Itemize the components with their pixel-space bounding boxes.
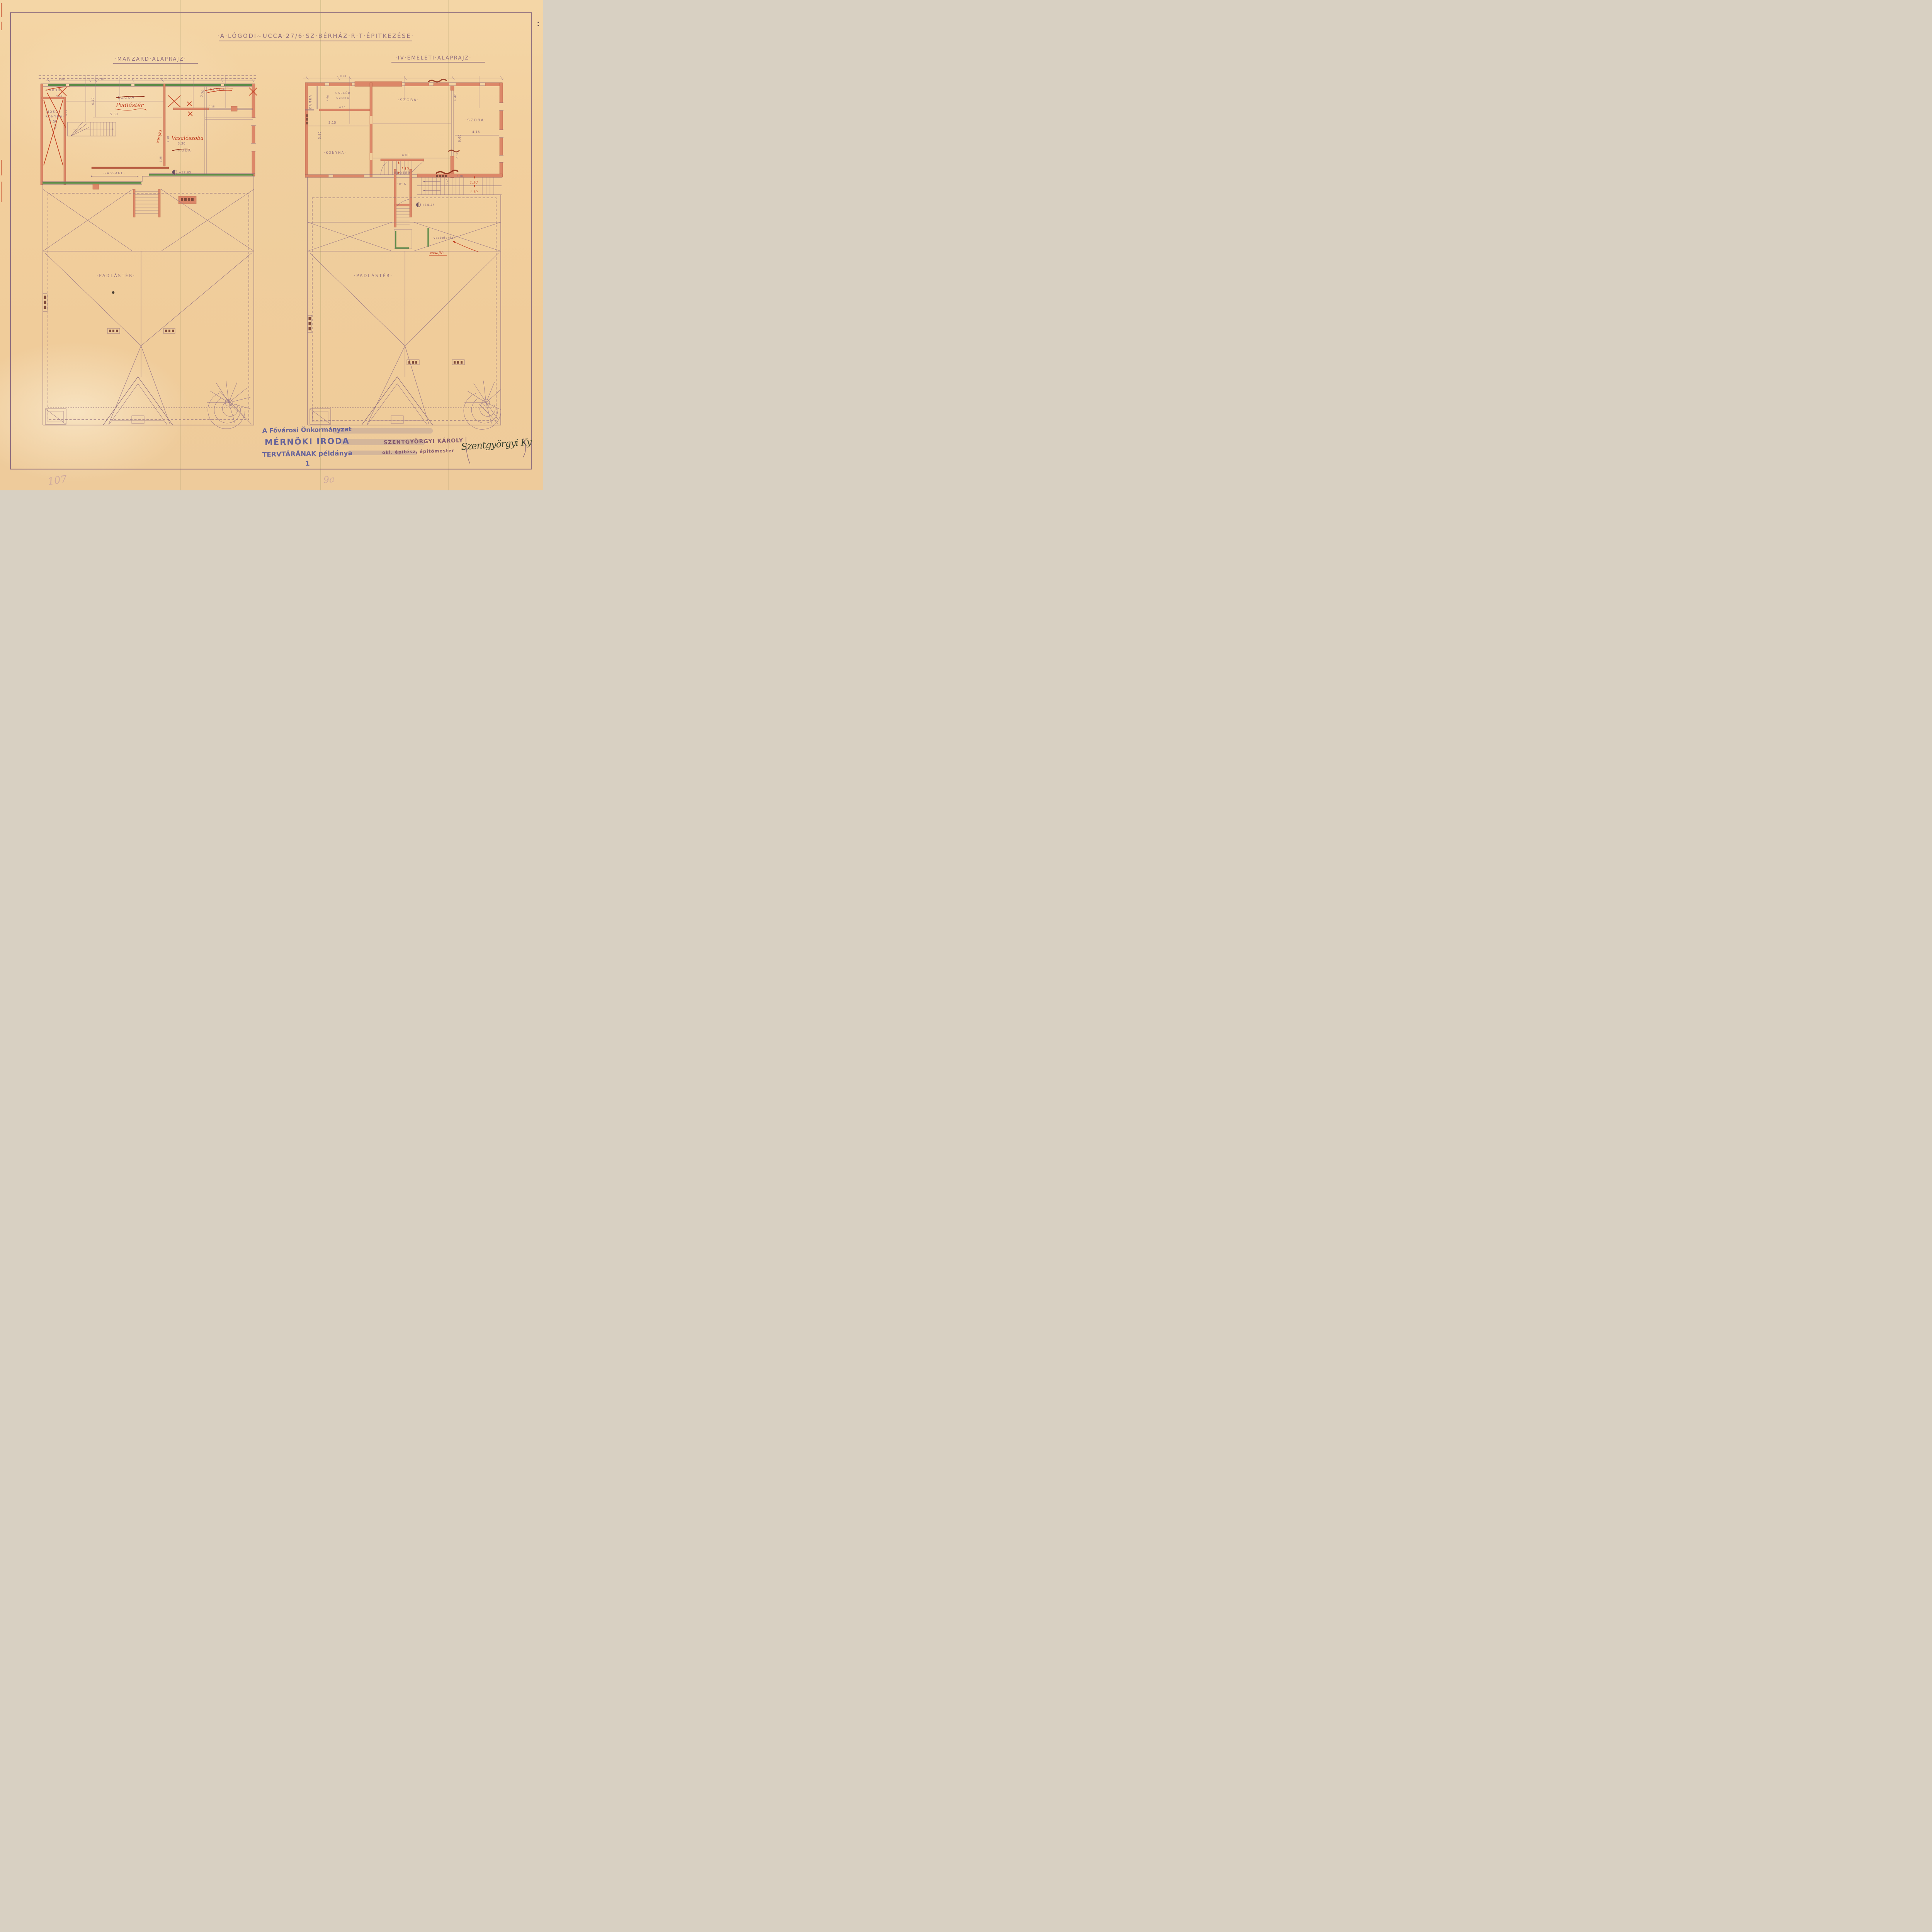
archive-stamp-page-number: 1 [305,460,310,468]
center-wall [163,84,165,166]
dim: 5.30 [110,112,118,116]
right-plan-title: ·IV·EMELETI·ALAPRAJZ· [395,55,472,61]
passage-wall [92,167,169,169]
room-label-eloter: ·ELŐTÉR· [393,171,413,175]
pencil-number-right: 9a [323,474,335,485]
roof-label-left: ·PADLÁSTÉR· [97,273,136,278]
note-vasbetonfal: vasbetonfal [434,236,455,240]
red-cross-marks [44,87,257,165]
spiral-stair [207,381,250,429]
dim: 0.45 [98,77,104,80]
dark-red-scribble [436,170,458,174]
level-mark: +14.45 [417,203,435,207]
room-label-kamra: KAMRA· [309,93,312,109]
stair-center [68,122,116,136]
room-label-cseled1: CSELÉD [335,91,351,95]
left-roof-plan: ·PADLÁSTÉR· [43,176,254,429]
chimney [308,315,312,332]
room-label-szoba-right: ·SZOBA· [465,118,486,122]
ink-dot [537,25,539,26]
roof-gable [103,377,173,425]
note-vasajto: vasajtó [430,251,444,255]
edge-mark [1,22,2,30]
dim: 2.40 [325,95,330,101]
dim: 0.15 [209,105,215,108]
room-label-wc: ·W·C· [397,182,408,185]
corner-box [45,409,66,424]
dim: 2.40 [446,179,449,185]
scissor-stairs: 1.10 1.10 [417,176,502,195]
architect-stamp-name: SZENTGYÖRGYI KÁROLY [383,437,463,446]
chimney [43,294,47,311]
dim: 0.13 [65,110,68,116]
vent-box [407,360,419,365]
dim: 0.38 [457,175,463,178]
dim: 0.25 [59,77,65,80]
vasbeton-wall [394,228,428,249]
room-label-passage: ·PASSAGE· [103,172,126,175]
right-outer-wall [251,84,256,176]
stair-dim: 1.10 [470,190,478,194]
roof-bracing [308,222,501,251]
red-arrow [453,241,478,252]
pencil-number-left: 107 [47,473,68,488]
signature: Szentgyörgyi Ky [461,432,533,465]
dark-red-scribble [448,150,459,152]
dim: 3.30 [178,142,185,145]
dim: 3.15 [328,121,336,124]
vent-box [452,360,464,365]
dim: 0.10 [167,136,170,142]
red-underline [115,109,147,110]
green-wall-band [43,182,141,184]
architect-stamp-title: okl. építész, építőmester [382,448,454,455]
vent-box [107,328,120,333]
szoba-divider-wall [173,108,209,110]
room-label-szoba-mid: ·SZOBA· [398,98,419,102]
door-gap [370,116,372,124]
red-note-vasajto: vasajtó [155,129,163,144]
right-outer-wall [499,83,503,177]
edge-mark [1,160,2,175]
cseled-bottom-wall [319,109,371,111]
wc-shaft [394,169,412,227]
dim: 4.00 [402,153,410,157]
ink-dot [537,22,539,23]
spiral-stair [464,381,501,429]
sheet-title: ·A·LÓGODI~UCCA·27/6·SZ·BÉRHÁZ·R·T·ÉPITKE… [217,32,414,39]
right-roof-plan: ·PADLÁSTÉR· [308,177,501,429]
signature-text: Szentgyörgyi Ky [461,437,532,452]
wall-jamb [231,106,237,111]
dim: 3.80 [318,131,321,139]
right-floor-plan: 0.38 [303,75,504,255]
dim: 4.40 [454,94,457,101]
left-plan-title: ·MANZARD·ALAPRAJZ· [115,56,187,62]
scanned-plan-sheet: ·A·LÓGODI~UCCA·27/6·SZ·BÉRHÁZ·R·T·ÉPITKE… [0,0,543,490]
roof-label-right: ·PADLÁSTÉR· [354,273,393,278]
room-label-furdo: FÜRDŐ [46,88,61,92]
stair-dim: 1.10 [401,167,409,171]
roof-bracing [43,189,254,251]
level-value: +14.45 [422,203,435,207]
vent-box [163,328,175,333]
red-note-padlaster: Padlástér [116,102,144,109]
dim: 6.60 [458,134,461,142]
grid-lines [66,76,226,122]
green-wall-band [149,174,253,176]
left-stair-shaft [133,189,160,217]
dim: 0.10 [339,106,345,109]
architect-stamp: SZENTGYÖRGYI KÁROLY okl. építész, építőm… [382,437,464,455]
roof-hips [310,251,498,424]
green-wall-bands [48,84,253,86]
left-floor-plan: 0.25 0.45 [39,76,257,204]
sheet-frame [1,3,539,469]
room-label-cseled2: ·SZOBA· [335,97,351,100]
door-gap [370,153,372,160]
dim: 0.38 [340,75,346,78]
archive-stamp-line3: TERVTÁRÁNAK példánya [262,449,353,459]
roof-gable [362,377,433,425]
left-outer-wall [305,83,308,177]
drawing-svg: ·A·LÓGODI~UCCA·27/6·SZ·BÉRHÁZ·R·T·ÉPITKE… [0,0,543,490]
dim: 4.40 [91,97,95,105]
archive-stamp-line2: MÉRNÖKI IRODA [265,436,350,447]
stair-dim: 1.10 [470,181,478,185]
room-label-konyha: ·KONYHA· [324,151,347,155]
level-value: +17.65 [179,171,191,174]
dim: 0.10 [456,152,459,158]
red-note-vasaloszoba: Vasalószoba [172,135,204,141]
ink-blot [112,291,114,294]
edge-mark [1,3,2,17]
wall-stub [93,184,99,189]
dim: 4.15 [472,130,480,134]
dim: 2.25 [159,156,162,162]
corner-box [310,409,331,424]
dark-red-scribble [428,79,447,82]
header: ·A·LÓGODI~UCCA·27/6·SZ·BÉRHÁZ·R·T·ÉPITKE… [113,32,485,63]
edge-mark [1,182,2,202]
dim: 2.50 [200,89,205,98]
central-wall [370,83,372,177]
